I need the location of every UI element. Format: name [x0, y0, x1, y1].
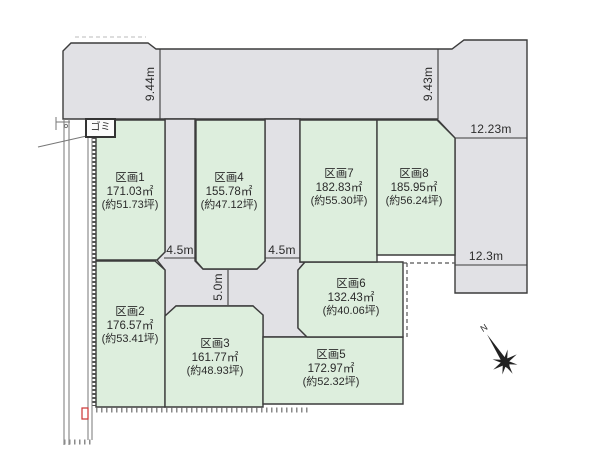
plot-1-label: 区画1 171.03㎡ (約51.73坪) [102, 172, 159, 213]
plot-1-name: 区画1 [102, 172, 159, 186]
plot-5-area: 172.97㎡ [303, 363, 360, 377]
plot-1-area: 171.03㎡ [102, 186, 159, 200]
measure-road-east-width: 4.5m [268, 243, 295, 257]
plot-7-label: 区画7 182.83㎡ (約55.30坪) [311, 168, 368, 209]
plot-3-area: 161.77㎡ [187, 352, 244, 366]
plot-4-label: 区画4 155.78㎡ (約47.12坪) [201, 172, 258, 213]
plot-5-name: 区画5 [303, 349, 360, 363]
plot-4-area: 155.78㎡ [201, 186, 258, 200]
plot-2-area: 176.57㎡ [102, 320, 159, 334]
plot-5-tsubo: (約52.32坪) [303, 376, 360, 390]
plot-5-label: 区画5 172.97㎡ (約52.32坪) [303, 349, 360, 390]
plot-3-name: 区画3 [187, 338, 244, 352]
plot-3-tsubo: (約48.93坪) [187, 365, 244, 379]
plot-8-area: 185.95㎡ [386, 182, 443, 196]
measure-road-south-width: 5.0m [211, 273, 225, 300]
lot-map-drawing [0, 0, 600, 452]
measure-right-upper-width: 12.23m [470, 122, 511, 136]
plot-6-area: 132.43㎡ [323, 292, 380, 306]
plot-4-tsubo: (約47.12坪) [201, 199, 258, 213]
plot-4-name: 区画4 [201, 172, 258, 186]
measure-top-right-depth: 9.43m [421, 67, 435, 101]
plot-1-tsubo: (約51.73坪) [102, 199, 159, 213]
survey-marker-red [82, 408, 88, 419]
plot-7-area: 182.83㎡ [311, 182, 368, 196]
measure-road-west-width: 4.5m [166, 243, 193, 257]
plot-6-name: 区画6 [323, 278, 380, 292]
plot-6-tsubo: (約40.06坪) [323, 305, 380, 319]
plot-2-tsubo: (約53.41坪) [102, 333, 159, 347]
utility-pole-icon [64, 124, 67, 127]
plot-2-name: 区画2 [102, 306, 159, 320]
lot-map-canvas: 9.44m 9.43m 12.23m 12.3m 4.5m 4.5m 5.0m … [0, 0, 600, 452]
measure-right-lower-width: 12.3m [469, 249, 503, 263]
plot-7-name: 区画7 [311, 168, 368, 182]
plot-6-label: 区画6 132.43㎡ (約40.06坪) [323, 278, 380, 319]
garbage-station-label: ゴミ [85, 118, 116, 138]
plot-3-label: 区画3 161.77㎡ (約48.93坪) [187, 338, 244, 379]
plot-7-tsubo: (約55.30坪) [311, 195, 368, 209]
plot-8-name: 区画8 [386, 168, 443, 182]
plot-8-label: 区画8 185.95㎡ (約56.24坪) [386, 168, 443, 209]
measure-top-left-depth: 9.44m [143, 67, 157, 101]
compass-icon [475, 327, 524, 382]
plot-2-label: 区画2 176.57㎡ (約53.41坪) [102, 306, 159, 347]
plot-8-tsubo: (約56.24坪) [386, 195, 443, 209]
